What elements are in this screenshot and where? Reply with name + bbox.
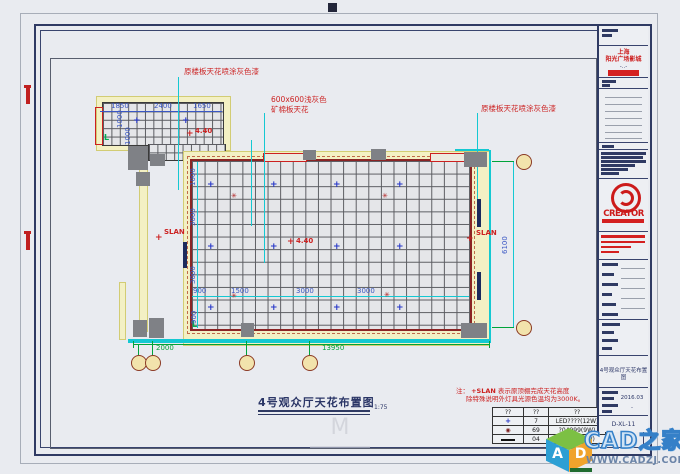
note-text: 表示原顶棚完成天花高度 [498, 387, 570, 395]
downlight-symbol-icon: + [505, 417, 511, 425]
column-block [303, 150, 316, 160]
tb-company-info-section [599, 232, 648, 260]
tb-label-section [599, 78, 648, 89]
door-bar [477, 199, 481, 227]
ceiling-note-line2: 除特殊说明外灯具光源色温均为3000K。 [466, 396, 584, 403]
sheet-dash: - [617, 405, 647, 411]
elevation-symbol-icon: +SLAN [471, 387, 496, 395]
cad-viewer-canvas: L L 4号观众厅天花布置图 1:75 M [0, 0, 680, 474]
column-block [136, 172, 150, 186]
dimension-line [197, 162, 198, 328]
legend-header-cell: ?? [524, 408, 549, 417]
drawing-title: 4号观众厅天花布置图 [258, 397, 375, 408]
column-block [461, 323, 487, 338]
spot-light-symbol-icon: ◉ [505, 427, 510, 434]
tb-notes-bars-section [599, 150, 648, 179]
sheet-name: 4号观众厅天花布置图 [599, 368, 648, 381]
bubble-leader [152, 344, 153, 355]
ceiling-note-line1: 注： +SLAN 表示原顶棚完成天花高度 [456, 388, 569, 395]
strip-light-symbol-icon [501, 439, 515, 441]
column-block [464, 152, 487, 167]
dimension-line [513, 162, 514, 328]
client-red-bar [608, 70, 639, 76]
fold-mark-icon [26, 234, 30, 250]
column-block [150, 154, 165, 166]
fold-mark-icon [24, 85, 31, 88]
column-block [128, 146, 148, 170]
door-bar [477, 272, 481, 300]
leader-line [178, 77, 179, 190]
cadzj-watermark-url: WWW.CADZJ.COM [586, 456, 680, 466]
corner-mark: L [104, 133, 109, 142]
cadzj-watermark-brand: CAD之家 [584, 431, 680, 453]
bubble-leader [492, 327, 514, 328]
tb-project-rows [599, 320, 648, 356]
title-block: 上海 阳光广场影城 -..- [597, 26, 648, 432]
column-block [241, 323, 254, 337]
leader-line [251, 140, 252, 226]
dimension-line [192, 296, 469, 297]
fold-mark-icon [24, 231, 31, 234]
door-bar [183, 242, 187, 268]
client-name-line2: 阳光广场影城 [599, 56, 648, 64]
title-underline [258, 410, 370, 412]
faint-crest-text [310, 446, 370, 448]
bubble-leader [138, 344, 139, 355]
dim-tick [489, 341, 490, 348]
fold-mark-icon [328, 3, 337, 12]
column-block [371, 149, 386, 160]
ceiling-edge-line [455, 149, 489, 151]
sheet-date: 2016.03 [617, 395, 647, 401]
hall-ceiling-grid [190, 159, 472, 331]
column-block [149, 318, 164, 338]
legend-qty: 7 [524, 417, 549, 426]
tb-brand-section: CREATOR [599, 179, 648, 232]
drawing-scale: 1:75 [374, 405, 387, 411]
dim-tick [133, 341, 134, 348]
bubble-leader [246, 344, 247, 355]
legend-header-cell: ?? [493, 408, 524, 417]
tb-label-section [599, 143, 648, 150]
legend-row: +7LED????(12W) [493, 417, 606, 426]
ante-room-ceiling-grid [102, 102, 224, 146]
legend-qty: 04 [524, 435, 549, 444]
tb-signature-section [599, 89, 648, 143]
legend-qty: 69 [524, 426, 549, 435]
tb-client-section: 上海 阳光广场影城 -..- [599, 46, 648, 78]
grid-dimension-line [133, 344, 490, 345]
column-block [133, 320, 147, 337]
fold-mark-icon [26, 88, 30, 104]
note-prefix: 注： [456, 387, 469, 395]
ceiling-detail-outline [430, 153, 466, 162]
bubble-leader [309, 344, 310, 355]
cube-shadow [570, 468, 592, 472]
creator-brand-name: CREATOR [599, 209, 648, 219]
dimension-line [100, 111, 222, 112]
ceiling-detail-outline [263, 153, 307, 162]
sheet-number: D-XL-11 [599, 421, 648, 428]
tb-revision-rows [599, 260, 648, 320]
wall-opening-outline [95, 107, 103, 145]
corridor-wall-band [119, 282, 126, 340]
legend-header-row: ?????? [493, 408, 606, 417]
tb-sheet-name-cell: 4号观众厅天花布置图 [599, 356, 648, 388]
tb-owner-section [599, 26, 648, 46]
creator-red-bar [602, 219, 644, 223]
tb-date-cell: 2016.03 - [599, 388, 648, 416]
bubble-leader [492, 161, 514, 162]
leader-line [264, 113, 265, 263]
ceiling-edge-line [489, 150, 491, 342]
